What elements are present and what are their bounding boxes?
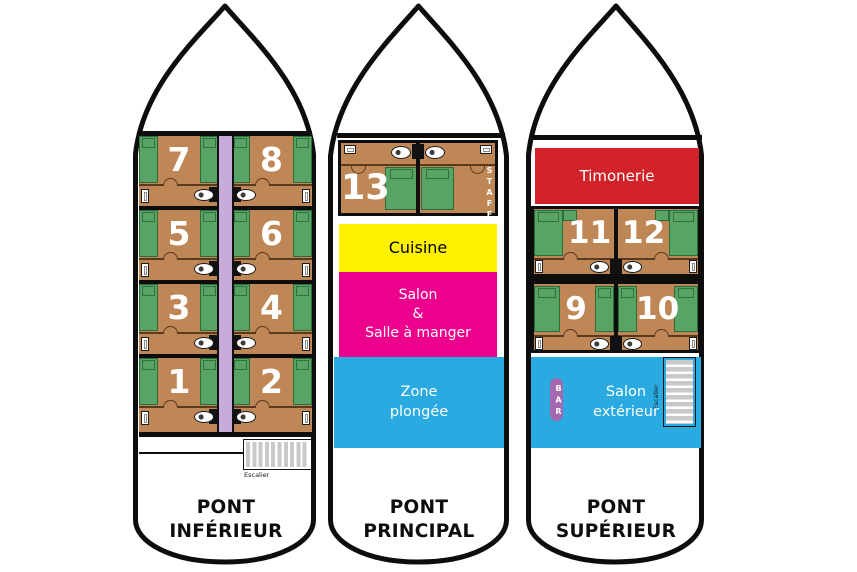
cabin-partition-line — [231, 406, 312, 408]
sink-icon — [194, 337, 214, 349]
cabin-3: 3 — [139, 284, 219, 354]
porthole-icon — [689, 337, 697, 350]
porthole-icon — [141, 337, 149, 351]
cabin-8: 8 — [231, 136, 312, 206]
cabin-number: 7 — [139, 136, 219, 184]
sink-icon — [623, 338, 642, 350]
sink-icon — [194, 189, 214, 201]
toilet-block — [610, 336, 622, 351]
porthole-icon — [141, 263, 149, 277]
sink-icon — [194, 263, 214, 275]
porthole-icon — [302, 263, 310, 277]
cabin-number: 13 — [341, 165, 387, 211]
sink-icon — [590, 338, 609, 350]
cabin-partition-line — [139, 258, 219, 260]
porthole-icon — [141, 189, 149, 203]
deck-title-inferieur: PONT INFÉRIEUR — [139, 496, 313, 520]
cabin-number: 3 — [139, 284, 219, 332]
sink-icon — [194, 411, 214, 423]
deck-title-superieur: PONT SUPÉRIEUR — [531, 496, 701, 520]
cabin-partition-line — [139, 406, 219, 408]
sink-icon — [590, 261, 609, 273]
dive-zone-label: Zone plongée — [390, 383, 448, 422]
deck-title-principal: PONT PRINCIPAL — [334, 496, 504, 520]
cabin-row-11-12: 11 12 — [531, 206, 701, 277]
kitchen-label: Cuisine — [389, 237, 448, 259]
sink-icon — [236, 411, 256, 423]
sink-icon — [236, 263, 256, 275]
porthole-icon — [141, 411, 149, 425]
cabin-partition-line — [139, 184, 219, 186]
kitchen-room: Cuisine — [339, 224, 497, 272]
porthole-icon — [689, 260, 697, 273]
cabin-row-9-10: 9 10 — [531, 281, 701, 353]
cabin-number: 8 — [231, 136, 312, 184]
cabin-1: 1 — [139, 358, 219, 432]
staff-tag: STAFF — [485, 166, 494, 212]
cabin-6: 6 — [231, 210, 312, 280]
porthole-icon — [480, 145, 492, 154]
cabin-7: 7 — [139, 136, 219, 206]
salon-dining-room: Salon & Salle à manger — [339, 272, 497, 357]
sink-icon — [425, 146, 445, 159]
cabin-4: 4 — [231, 284, 312, 354]
toilet-block — [610, 259, 622, 274]
bulkhead — [139, 432, 312, 437]
porthole-icon — [535, 260, 543, 273]
wheelhouse: Timonerie — [535, 148, 699, 204]
cabin-number: 12 — [622, 209, 664, 257]
bed — [669, 210, 698, 256]
outdoor-salon: BAR Salon extérieur Escalier — [531, 357, 701, 448]
cabin-partition-line — [231, 332, 312, 334]
bed — [385, 167, 418, 210]
door-arc — [654, 252, 669, 260]
cabin-13: 13 STAFF — [338, 140, 498, 216]
door-arc — [470, 166, 485, 174]
stairs-label: Escalier — [244, 471, 269, 479]
toilet-block — [412, 144, 424, 159]
sink-icon — [623, 261, 642, 273]
cabin-number: 2 — [231, 358, 312, 406]
porthole-icon — [344, 145, 356, 154]
cabin-number: 4 — [231, 284, 312, 332]
sink-icon — [236, 189, 256, 201]
cabin-partition-line — [139, 332, 219, 334]
deck-plan-canvas: 7 8 5 — [0, 0, 857, 572]
porthole-icon — [535, 337, 543, 350]
cabin-number: 5 — [139, 210, 219, 258]
bed — [618, 286, 637, 332]
cabin-number: 6 — [231, 210, 312, 258]
bulkhead — [532, 135, 702, 140]
staircase — [663, 357, 696, 427]
bed — [421, 167, 454, 210]
staircase — [243, 439, 312, 470]
porthole-icon — [302, 189, 310, 203]
dive-zone: Zone plongée — [334, 357, 504, 448]
sink-icon — [236, 337, 256, 349]
cabin-5: 5 — [139, 210, 219, 280]
porthole-icon — [302, 411, 310, 425]
cabin-number: 1 — [139, 358, 219, 406]
aft-wall-line — [139, 452, 243, 454]
cabin-number: 10 — [636, 284, 672, 334]
cabin-number: 9 — [560, 284, 592, 334]
cabin-partition-line — [231, 258, 312, 260]
corridor — [217, 136, 234, 432]
cabin-number: 11 — [568, 209, 610, 257]
salon-dining-label: Salon & Salle à manger — [365, 286, 471, 343]
bed — [595, 286, 614, 332]
porthole-icon — [302, 337, 310, 351]
cabin-2: 2 — [231, 358, 312, 432]
bed — [534, 210, 563, 256]
cabin-partition-line — [231, 184, 312, 186]
sink-icon — [391, 146, 411, 159]
wheelhouse-label: Timonerie — [580, 166, 655, 186]
bulkhead — [337, 133, 505, 138]
bed — [534, 286, 560, 332]
